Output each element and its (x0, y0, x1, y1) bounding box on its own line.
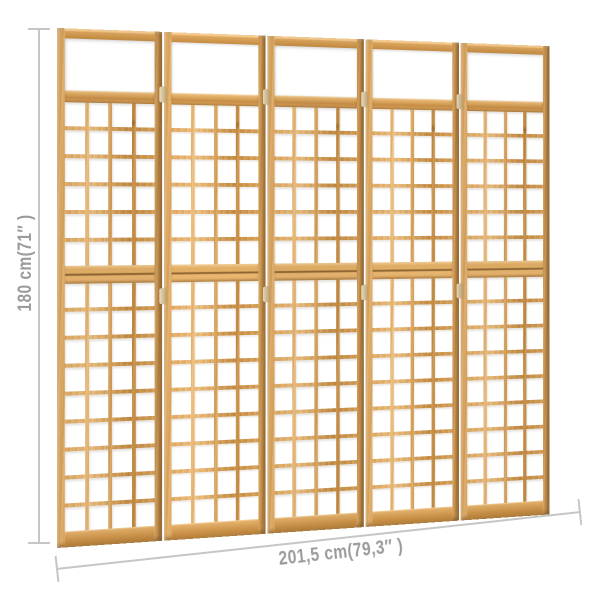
grid-cell (339, 437, 357, 461)
grid-cell (507, 137, 524, 159)
grid-cell (507, 455, 524, 478)
grid-cell (527, 378, 543, 400)
hinge-icon (263, 89, 269, 104)
grid-cell (373, 135, 391, 158)
grid-cell (318, 465, 336, 489)
panel-upper-grid (274, 107, 357, 264)
grid-cell (89, 283, 109, 307)
grid-cell (414, 278, 431, 301)
grid-cell (65, 130, 85, 154)
grid-cell (136, 159, 155, 183)
grid-cell (527, 214, 543, 236)
grid-cell (487, 303, 504, 325)
panel-top-window (467, 52, 543, 102)
grid-cell (467, 431, 484, 454)
grid-cell (394, 305, 411, 328)
grid-cell (296, 214, 314, 237)
grid-cell (195, 159, 214, 182)
grid-cell (296, 439, 314, 463)
grid-cell (136, 283, 155, 307)
grid-cell (339, 358, 357, 381)
grid-cell (507, 480, 524, 503)
grid-cell (217, 362, 236, 386)
grid-cell (414, 356, 431, 379)
grid-cell (217, 187, 236, 210)
grid-cell (487, 456, 504, 479)
grid-cell (527, 277, 543, 299)
grid-cell (274, 360, 292, 384)
grid-cell (507, 429, 524, 452)
grid-cell (65, 339, 85, 363)
grid-cell (373, 488, 391, 512)
grid-cell (414, 214, 431, 236)
hinge-icon (160, 288, 167, 304)
grid-cell (339, 135, 357, 158)
trellis-panel (267, 36, 364, 534)
grid-cell (487, 328, 504, 350)
panel-lower-grid (467, 277, 543, 506)
grid-cell (112, 393, 132, 417)
grid-cell (296, 107, 314, 130)
panel-mid-rail (373, 262, 452, 280)
grid-cell (112, 338, 132, 362)
grid-cell (172, 391, 191, 415)
grid-cell (89, 422, 109, 447)
panel-lower-grid (274, 280, 357, 518)
grid-cell (240, 308, 259, 331)
panel-top-window (65, 38, 155, 92)
grid-cell (339, 187, 357, 210)
grid-cell (487, 163, 504, 185)
grid-cell (172, 104, 191, 128)
grid-cell (65, 478, 85, 503)
grid-cell (467, 457, 484, 480)
grid-cell (507, 112, 524, 134)
grid-cell (487, 188, 504, 210)
grid-cell (89, 505, 109, 530)
grid-cell (240, 133, 259, 156)
grid-cell (112, 214, 132, 238)
grid-cell (435, 162, 452, 184)
grid-cell (89, 242, 109, 266)
panel-lower-grid (373, 278, 452, 511)
grid-cell (112, 504, 132, 529)
grid-cell (394, 383, 411, 406)
panel-top-window (274, 46, 357, 98)
grid-cell (65, 395, 85, 420)
grid-cell (318, 187, 336, 210)
grid-cell (467, 188, 484, 210)
grid-cell (217, 214, 236, 237)
panel-mid-rail (65, 265, 155, 284)
height-dimension-line (38, 28, 40, 544)
grid-cell (487, 111, 504, 133)
grid-cell (435, 355, 452, 378)
grid-cell (274, 240, 292, 263)
grid-cell (195, 282, 214, 306)
trellis-panel (164, 32, 265, 541)
grid-cell (435, 381, 452, 404)
grid-cell (172, 445, 191, 469)
panel-upper-grid (65, 102, 155, 266)
grid-cell (136, 392, 155, 416)
grid-cell (65, 367, 85, 392)
hinge-icon (361, 285, 367, 300)
hinge-icon (456, 283, 462, 298)
grid-cell (527, 302, 543, 324)
hinge-icon (361, 92, 367, 107)
grid-cell (527, 188, 543, 210)
grid-cell (373, 240, 391, 263)
grid-cell (172, 132, 191, 156)
grid-cell (136, 365, 155, 389)
grid-cell (274, 467, 292, 491)
grid-cell (112, 448, 132, 473)
grid-cell (339, 332, 357, 355)
grid-cell (467, 329, 484, 351)
grid-cell (394, 409, 411, 432)
grid-cell (172, 364, 191, 388)
grid-cell (527, 403, 543, 425)
grid-cell (65, 158, 85, 182)
grid-cell (394, 331, 411, 354)
grid-cell (373, 161, 391, 184)
grid-cell (414, 188, 431, 210)
grid-cell (373, 436, 391, 459)
grid-cell (507, 302, 524, 324)
grid-cell (318, 438, 336, 462)
panel-mid-rail (274, 263, 357, 281)
panel-upper-grid (172, 104, 258, 264)
grid-cell (414, 304, 431, 327)
grid-cell (217, 105, 236, 129)
grid-cell (414, 486, 431, 509)
grid-cell (240, 187, 259, 210)
grid-cell (507, 239, 524, 261)
grid-cell (339, 240, 357, 263)
grid-cell (435, 330, 452, 353)
grid-cell (240, 362, 259, 386)
grid-cell (467, 278, 484, 300)
grid-cell (195, 417, 214, 441)
panel-upper-grid (467, 111, 543, 261)
grid-cell (65, 451, 85, 476)
grid-cell (339, 161, 357, 184)
grid-cell (112, 242, 132, 266)
grid-cell (507, 379, 524, 401)
grid-cell (467, 111, 484, 133)
grid-cell (487, 354, 504, 376)
grid-cell (112, 421, 132, 446)
grid-cell (487, 277, 504, 299)
grid-cell (172, 241, 191, 265)
grid-cell (240, 496, 259, 520)
grid-cell (487, 379, 504, 402)
grid-cell (435, 278, 452, 300)
grid-cell (65, 423, 85, 448)
grid-cell (527, 327, 543, 349)
grid-cell (274, 187, 292, 210)
grid-cell (195, 132, 214, 156)
grid-cell (507, 188, 524, 210)
grid-cell (467, 303, 484, 325)
panel-mid-rail (467, 261, 543, 278)
grid-cell (414, 136, 431, 158)
grid-cell (136, 214, 155, 238)
grid-cell (507, 353, 524, 375)
grid-cell (217, 308, 236, 332)
grid-cell (296, 187, 314, 210)
grid-cell (339, 214, 357, 237)
grid-cell (339, 464, 357, 488)
grid-cell (296, 307, 314, 330)
grid-cell (195, 309, 214, 333)
grid-cell (373, 331, 391, 354)
grid-cell (414, 110, 431, 133)
grid-cell (435, 407, 452, 430)
grid-cell (172, 309, 191, 333)
grid-cell (414, 382, 431, 405)
grid-cell (195, 214, 214, 237)
grid-cell (394, 109, 411, 132)
grid-cell (112, 310, 132, 334)
grid-cell (467, 214, 484, 236)
grid-cell (467, 137, 484, 159)
grid-cell (339, 306, 357, 329)
grid-cell (112, 476, 132, 501)
grid-cell (339, 490, 357, 514)
grid-cell (435, 433, 452, 456)
grid-cell (89, 186, 109, 210)
grid-cell (217, 497, 236, 521)
grid-cell (296, 240, 314, 263)
height-dimension: 180 cm(71″ ) (28, 28, 50, 544)
grid-cell (318, 333, 336, 356)
grid-cell (217, 416, 236, 440)
grid-cell (435, 304, 452, 327)
trellis-panel (460, 43, 549, 521)
grid-cell (339, 411, 357, 434)
grid-cell (394, 487, 411, 510)
grid-cell (240, 106, 259, 129)
grid-cell (240, 214, 259, 237)
grid-cell (65, 311, 85, 335)
grid-cell (373, 188, 391, 210)
trellis (57, 28, 549, 548)
grid-cell (435, 484, 452, 507)
grid-cell (172, 500, 191, 525)
grid-cell (65, 284, 85, 308)
grid-cell (394, 240, 411, 262)
grid-cell (467, 406, 484, 429)
grid-cell (414, 434, 431, 457)
grid-cell (296, 466, 314, 490)
grid-cell (373, 109, 391, 132)
grid-cell (487, 239, 504, 261)
grid-cell (318, 280, 336, 303)
grid-cell (296, 161, 314, 184)
grid-cell (527, 112, 543, 134)
grid-cell (195, 105, 214, 129)
grid-cell (217, 470, 236, 494)
hinge-icon (456, 94, 462, 109)
grid-cell (435, 110, 452, 132)
grid-cell (112, 283, 132, 307)
grid-cell (217, 133, 236, 156)
grid-cell (414, 408, 431, 431)
grid-cell (467, 162, 484, 184)
grid-cell (112, 103, 132, 127)
grid-cell (373, 357, 391, 380)
panel-lower-grid (172, 281, 258, 525)
grid-cell (339, 280, 357, 303)
panel-top-window (172, 42, 258, 95)
grid-cell (240, 281, 259, 304)
grid-cell (373, 462, 391, 485)
grid-cell (136, 131, 155, 155)
grid-cell (318, 412, 336, 436)
grid-cell (136, 104, 155, 128)
grid-cell (414, 460, 431, 483)
grid-cell (296, 333, 314, 356)
grid-cell (487, 137, 504, 159)
grid-cell (394, 162, 411, 184)
grid-cell (172, 159, 191, 183)
grid-cell (527, 353, 543, 375)
dimension-end-cap (578, 499, 583, 525)
grid-cell (274, 160, 292, 183)
grid-cell (373, 279, 391, 302)
grid-cell (318, 386, 336, 409)
grid-cell (136, 447, 155, 472)
grid-cell (414, 162, 431, 184)
grid-cell (373, 214, 391, 236)
grid-cell (394, 214, 411, 236)
grid-cell (487, 481, 504, 504)
grid-cell (112, 159, 132, 183)
grid-cell (112, 366, 132, 390)
grid-cell (435, 188, 452, 210)
grid-cell (296, 413, 314, 437)
grid-cell (136, 337, 155, 361)
grid-cell (136, 310, 155, 334)
grid-cell (240, 388, 259, 412)
grid-cell (89, 366, 109, 390)
grid-cell (318, 134, 336, 157)
grid-cell (339, 108, 357, 131)
grid-cell (394, 135, 411, 158)
grid-cell (373, 305, 391, 328)
grid-cell (394, 461, 411, 484)
grid-cell (195, 363, 214, 387)
grid-cell (195, 390, 214, 414)
grid-cell (274, 307, 292, 330)
grid-cell (435, 214, 452, 236)
trellis-panel (366, 39, 459, 527)
grid-cell (217, 335, 236, 359)
grid-cell (217, 389, 236, 413)
grid-cell (467, 482, 484, 505)
grid-cell (195, 444, 214, 468)
grid-cell (467, 354, 484, 377)
grid-cell (318, 108, 336, 131)
grid-cell (527, 163, 543, 185)
grid-cell (240, 415, 259, 439)
grid-cell (435, 239, 452, 261)
grid-cell (527, 138, 543, 160)
grid-cell (507, 214, 524, 236)
grid-cell (217, 281, 236, 305)
grid-cell (89, 477, 109, 502)
grid-cell (414, 330, 431, 353)
grid-cell (296, 280, 314, 303)
grid-cell (172, 282, 191, 306)
grid-cell (507, 328, 524, 350)
grid-cell (172, 187, 191, 210)
grid-cell (394, 188, 411, 210)
grid-cell (240, 335, 259, 359)
grid-cell (394, 435, 411, 458)
grid-cell (274, 280, 292, 303)
trellis-panel (57, 28, 162, 548)
grid-cell (527, 479, 543, 502)
grid-cell (318, 491, 336, 515)
grid-cell (65, 242, 85, 266)
grid-cell (136, 420, 155, 444)
grid-cell (373, 410, 391, 433)
grid-cell (195, 336, 214, 360)
grid-cell (172, 336, 191, 360)
grid-cell (435, 459, 452, 482)
grid-cell (136, 502, 155, 527)
grid-cell (274, 334, 292, 357)
grid-cell (527, 428, 543, 451)
grid-cell (274, 107, 292, 130)
grid-cell (467, 239, 484, 261)
grid-cell (65, 506, 85, 531)
grid-cell (318, 240, 336, 263)
grid-cell (195, 471, 214, 495)
grid-cell (274, 494, 292, 518)
grid-cell (527, 454, 543, 477)
grid-cell (487, 405, 504, 428)
grid-cell (240, 241, 259, 264)
grid-cell (318, 306, 336, 329)
panel-lower-grid (65, 283, 155, 532)
height-dimension-label: 180 cm(71″ ) (15, 214, 37, 311)
grid-cell (318, 161, 336, 184)
hinge-icon (160, 87, 167, 103)
grid-cell (414, 240, 431, 262)
grid-cell (195, 241, 214, 264)
grid-cell (339, 385, 357, 408)
panel-mid-rail (172, 264, 258, 283)
grid-cell (136, 186, 155, 210)
grid-cell (373, 384, 391, 407)
grid-cell (89, 449, 109, 474)
grid-cell (240, 160, 259, 183)
grid-cell (394, 279, 411, 302)
grid-cell (172, 214, 191, 237)
grid-cell (195, 187, 214, 210)
grid-cell (487, 430, 504, 453)
grid-cell (394, 357, 411, 380)
panel-upper-grid (373, 109, 452, 263)
grid-cell (274, 414, 292, 438)
grid-cell (195, 499, 214, 523)
grid-cell (65, 102, 85, 126)
grid-cell (217, 241, 236, 264)
